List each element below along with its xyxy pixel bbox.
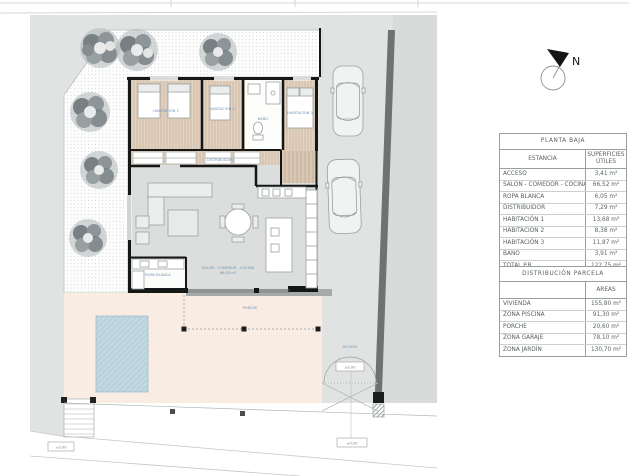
col-header-superficies: SUPERFICIES ÚTILES [585, 150, 626, 168]
label-habitacion-3: HABITACIÓN 3 [287, 110, 313, 115]
label-habitacion-2: HABITACIÓN 2 [209, 106, 235, 111]
sheet-grid-lines [0, 0, 629, 13]
pool [96, 316, 148, 392]
table-row: VIVIENDA155,80 m² [500, 299, 626, 311]
label-salon: SALÓN - COMEDOR - COCINA [202, 265, 255, 270]
label-habitacion-1: HABITACIÓN 1 [153, 108, 179, 113]
table-row: ZONA JARDÍN130,70 m² [500, 345, 626, 356]
table-row: ACCESO3,41 m² [500, 169, 626, 181]
table-row: ROPA BLANCA6,05 m² [500, 192, 626, 204]
table-row: BAÑO3,91 m² [500, 250, 626, 262]
label-bano: BAÑO [258, 116, 269, 121]
table-row: HABITACIÓN 113,68 m² [500, 215, 626, 227]
drawing-sheet: ±0,00 ±0,00 ±0,00 HABITACIÓN 1 HABITACIÓ… [0, 0, 629, 476]
table-row: HABITACIÓN 311,87 m² [500, 238, 626, 250]
svg-text:±0,00: ±0,00 [55, 445, 67, 449]
table-row: PORCHE20,60 m² [500, 322, 626, 334]
col-header-estancia: ESTANCIA [500, 150, 585, 168]
col-header-empty [500, 282, 585, 298]
table-planta-baja: PLANTA BAJA ESTANCIA SUPERFICIES ÚTILES … [499, 133, 627, 273]
svg-text:±0,00: ±0,00 [346, 441, 358, 445]
svg-text:±0,00: ±0,00 [344, 365, 356, 369]
table-row: ZONA PISCINA91,30 m² [500, 311, 626, 323]
street-lines [30, 431, 437, 476]
car-icon [325, 159, 364, 234]
label-ropa-blanca: ROPA BLANCA [145, 273, 171, 277]
car-icon [331, 66, 365, 136]
table-title: DISTRIBUCIÓN PARCELA [500, 267, 626, 282]
label-porche: PORCHE [243, 306, 259, 310]
table-distribucion-parcela: DISTRIBUCIÓN PARCELA AREAS VIVIENDA155,8… [499, 266, 627, 357]
north-arrow-icon: N [541, 49, 580, 90]
label-distribuidor: DISTRIBUIDOR [207, 158, 234, 162]
label-salon-area: 66,52 m² [220, 271, 237, 275]
north-label: N [572, 55, 580, 68]
label-acceso: ACCESO [343, 345, 358, 349]
table-row: DISTRIBUIDOR7,29 m² [500, 204, 626, 216]
table-title: PLANTA BAJA [500, 134, 626, 150]
col-header-areas: AREAS [585, 282, 626, 298]
table-row: ZONA GARAJE78,10 m² [500, 334, 626, 346]
table-row: HABITACIÓN 28,38 m² [500, 227, 626, 239]
table-row: SALÓN - COMEDOR - COCINA66,52 m² [500, 181, 626, 193]
